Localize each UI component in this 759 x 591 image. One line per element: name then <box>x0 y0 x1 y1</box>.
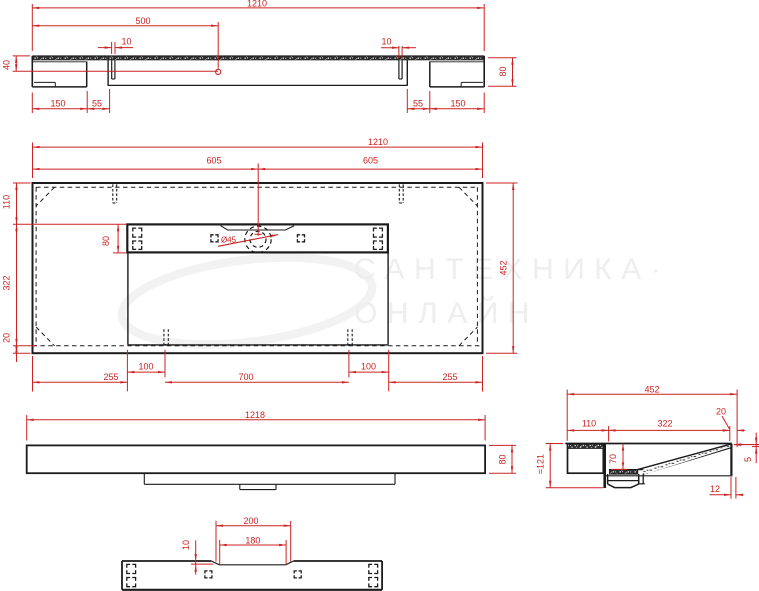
svg-text:80: 80 <box>498 454 508 464</box>
svg-text:САНТЕХНИКА·: САНТЕХНИКА· <box>354 253 670 286</box>
svg-text:180: 180 <box>245 535 260 545</box>
svg-text:1218: 1218 <box>245 410 265 420</box>
svg-text:700: 700 <box>238 372 253 382</box>
svg-text:12: 12 <box>710 484 720 494</box>
svg-text:10: 10 <box>121 37 131 47</box>
svg-text:452: 452 <box>644 385 659 395</box>
svg-text:200: 200 <box>243 516 258 526</box>
svg-text:40: 40 <box>2 60 12 70</box>
svg-text:110: 110 <box>582 419 596 429</box>
svg-text:150: 150 <box>450 98 465 108</box>
svg-text:150: 150 <box>50 98 65 108</box>
svg-text:255: 255 <box>442 372 457 382</box>
svg-text:605: 605 <box>206 156 221 166</box>
svg-text:452: 452 <box>499 260 509 275</box>
svg-text:20: 20 <box>716 407 726 417</box>
svg-text:80: 80 <box>101 236 111 246</box>
svg-text:100: 100 <box>361 362 376 372</box>
svg-text:255: 255 <box>103 372 118 382</box>
svg-text:1210: 1210 <box>247 0 267 8</box>
svg-text:80: 80 <box>498 66 508 76</box>
svg-text:110: 110 <box>2 195 12 209</box>
svg-text:1210: 1210 <box>368 137 388 147</box>
svg-text:605: 605 <box>363 156 378 166</box>
svg-text:322: 322 <box>2 275 12 290</box>
svg-text:ОНЛАЙН: ОНЛАЙН <box>354 296 539 330</box>
svg-text:55: 55 <box>413 98 423 108</box>
svg-text:Ø45: Ø45 <box>221 235 237 244</box>
svg-text:≈121: ≈121 <box>536 454 546 474</box>
svg-text:5: 5 <box>743 457 753 462</box>
svg-text:500: 500 <box>135 16 150 26</box>
svg-text:20: 20 <box>2 333 12 343</box>
svg-text:55: 55 <box>92 98 102 108</box>
svg-text:10: 10 <box>181 540 191 550</box>
svg-text:70: 70 <box>608 454 618 464</box>
svg-text:100: 100 <box>138 362 153 372</box>
svg-text:322: 322 <box>657 419 672 429</box>
svg-text:10: 10 <box>381 37 391 47</box>
